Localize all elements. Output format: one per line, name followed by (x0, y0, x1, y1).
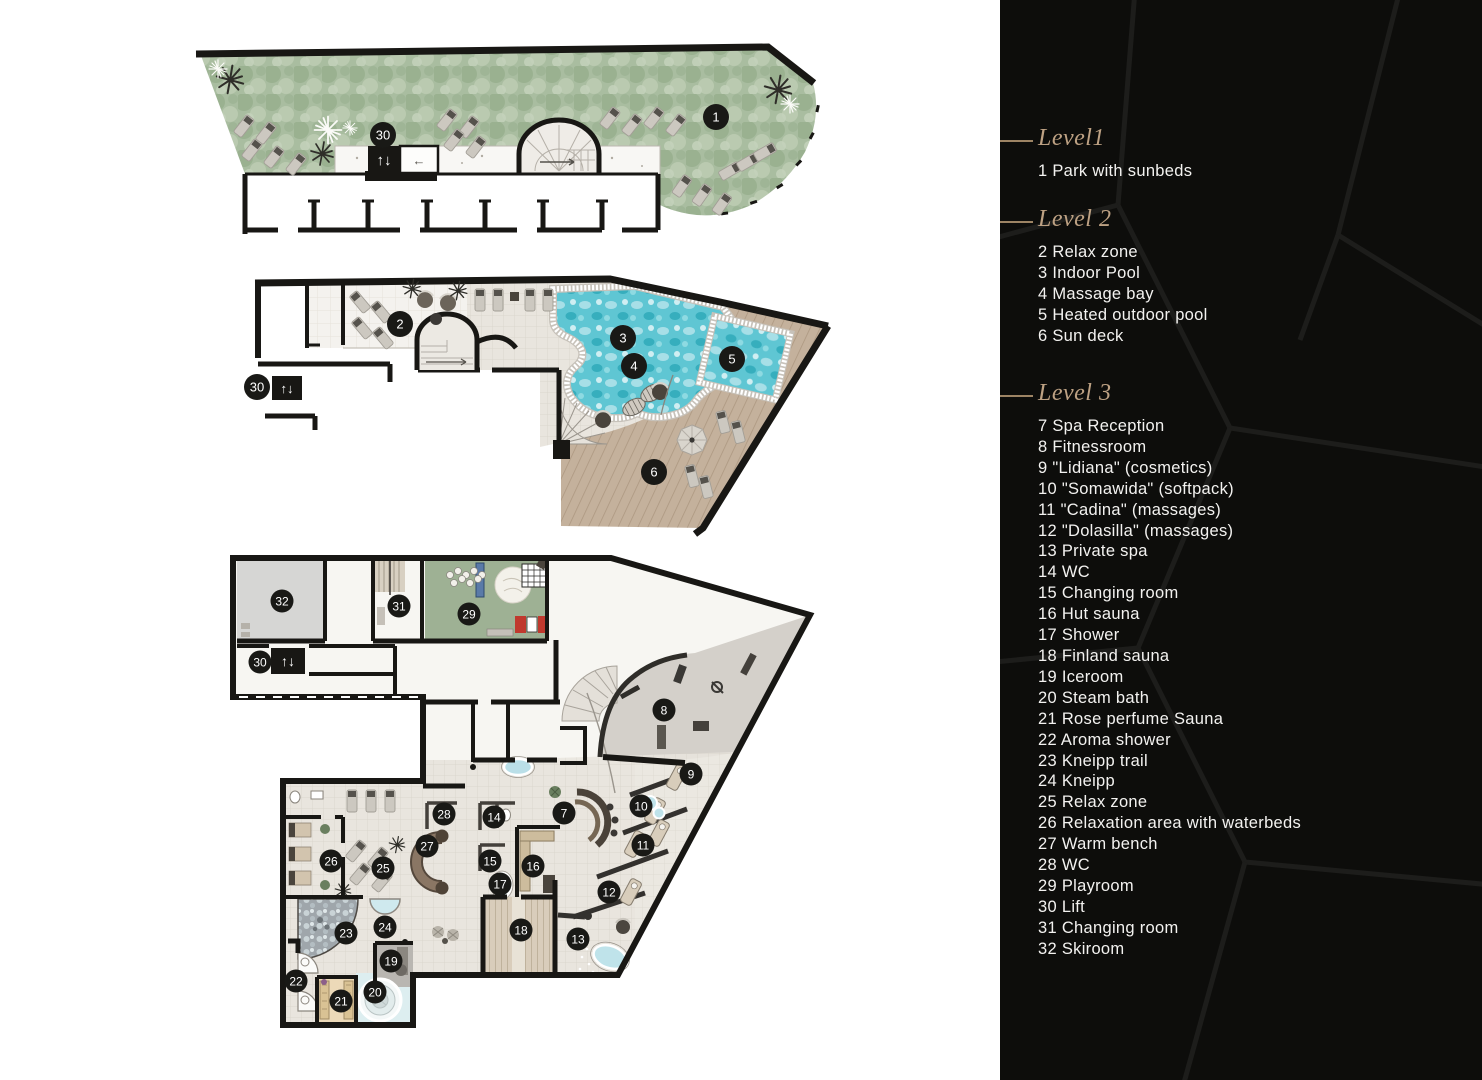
room-marker-number: 18 (514, 923, 528, 937)
legend-item: 20 Steam bath (1038, 688, 1301, 709)
room-marker-number: 30 (250, 380, 264, 395)
room-marker-number: 9 (688, 767, 695, 781)
room-marker-number: 5 (728, 352, 735, 367)
legend-item: 7 Spa Reception (1038, 416, 1301, 437)
legend-heading-level-1: Level1 (1038, 124, 1192, 152)
floor-plan-level-1: ↑↓ ← (196, 47, 820, 234)
outdoor-pool (699, 316, 790, 400)
legend-item: 15 Changing room (1038, 583, 1301, 604)
room-marker-number: 2 (396, 317, 403, 332)
lift-arrows-icon: ↑↓ (377, 152, 392, 169)
legend-item: 31 Changing room (1038, 918, 1301, 939)
legend-item: 16 Hut sauna (1038, 604, 1301, 625)
room-marker-number: 22 (289, 974, 303, 988)
legend-item: 9 "Lidiana" (cosmetics) (1038, 458, 1301, 479)
building-walls (245, 174, 658, 234)
room-marker-number: 31 (392, 599, 406, 613)
room-marker-number: 21 (334, 994, 348, 1008)
room-marker-number: 20 (368, 985, 382, 999)
floor-plans: ↑↓ ← (0, 0, 1000, 1080)
legend-item: 8 Fitnessroom (1038, 437, 1301, 458)
legend-item: 29 Playroom (1038, 876, 1301, 897)
legend-item: 32 Skiroom (1038, 939, 1301, 960)
room-marker-number: 1 (712, 110, 719, 125)
room-marker-number: 8 (661, 703, 668, 717)
legend-item: 28 WC (1038, 855, 1301, 876)
room-marker-number: 30 (253, 655, 267, 669)
legend-item: 14 WC (1038, 562, 1301, 583)
legend-item: 3 Indoor Pool (1038, 263, 1208, 284)
legend-item: 27 Warm bench (1038, 834, 1301, 855)
legend-item: 25 Relax zone (1038, 792, 1301, 813)
room-marker-number: 10 (634, 799, 648, 813)
room-marker-number: 25 (376, 861, 390, 875)
legend-item: 17 Shower (1038, 625, 1301, 646)
legend-item: 21 Rose perfume Sauna (1038, 709, 1301, 730)
room-marker-number: 27 (420, 839, 434, 853)
room-marker-number: 14 (487, 810, 501, 824)
legend-item: 4 Massage bay (1038, 284, 1208, 305)
legend-section-2: Level 22 Relax zone3 Indoor Pool4 Massag… (1038, 205, 1208, 347)
legend-item: 2 Relax zone (1038, 242, 1208, 263)
room-marker-number: 15 (483, 854, 497, 868)
room-marker-number: 23 (339, 926, 353, 940)
arrow-left-icon: ← (413, 153, 426, 168)
legend-item: 19 Iceroom (1038, 667, 1301, 688)
legend-item: 30 Lift (1038, 897, 1301, 918)
room-marker-number: 17 (493, 877, 507, 891)
legend-item: 6 Sun deck (1038, 326, 1208, 347)
legend-item: 26 Relaxation area with waterbeds (1038, 813, 1301, 834)
spa-floorplan-page: ↑↓ ← (0, 0, 1482, 1080)
legend-item-list: 1 Park with sunbeds (1038, 161, 1192, 182)
room-marker-number: 13 (571, 932, 585, 946)
lift-arrows-icon: ↑↓ (281, 653, 295, 669)
room-marker-number: 26 (324, 854, 338, 868)
room-marker-number: 19 (384, 954, 398, 968)
legend-panel: Level11 Park with sunbedsLevel 22 Relax … (1000, 0, 1482, 1080)
legend-heading-level-2: Level 2 (1038, 205, 1208, 233)
legend-section-1: Level11 Park with sunbeds (1038, 124, 1192, 182)
legend-item: 24 Kneipp (1038, 771, 1301, 792)
room-marker-number: 30 (376, 128, 390, 143)
legend-item: 10 "Somawida" (softpack) (1038, 479, 1301, 500)
legend-item-list: 2 Relax zone3 Indoor Pool4 Massage bay5 … (1038, 242, 1208, 347)
legend-item: 12 "Dolasilla" (massages) (1038, 521, 1301, 542)
lift-arrows-icon: ↑↓ (281, 381, 294, 396)
park-lawn (200, 47, 816, 215)
room-marker-number: 3 (619, 331, 626, 346)
room-marker-number: 28 (437, 807, 451, 821)
legend-item: 18 Finland sauna (1038, 646, 1301, 667)
room-marker-number: 4 (630, 359, 637, 374)
room-marker-number: 29 (462, 607, 476, 621)
legend-heading-level-3: Level 3 (1038, 379, 1301, 407)
legend-section-3: Level 37 Spa Reception8 Fitnessroom9 "Li… (1038, 379, 1301, 960)
floor-plan-level-3: ↑↓ 7891011121314151617181920212223242526… (233, 558, 810, 1030)
room-marker-number: 6 (650, 465, 657, 480)
legend-item: 5 Heated outdoor pool (1038, 305, 1208, 326)
stair-arch (519, 120, 599, 174)
room-marker-number: 16 (526, 859, 540, 873)
room-marker-number: 24 (378, 920, 392, 934)
room-marker-number: 7 (561, 806, 568, 820)
legend-item: 22 Aroma shower (1038, 730, 1301, 751)
legend-item: 23 Kneipp trail (1038, 751, 1301, 772)
stair-arch (417, 314, 477, 370)
room-marker-number: 32 (275, 594, 289, 608)
legend-item: 11 "Cadina" (massages) (1038, 500, 1301, 521)
legend-item-list: 7 Spa Reception8 Fitnessroom9 "Lidiana" … (1038, 416, 1301, 960)
room-marker-number: 12 (602, 885, 616, 899)
legend-item: 1 Park with sunbeds (1038, 161, 1192, 182)
room-marker-number: 11 (637, 838, 650, 852)
legend-item: 13 Private spa (1038, 541, 1301, 562)
umbrella-icon (677, 425, 707, 455)
floor-plan-level-2: ↑↓ 2345630 (244, 279, 828, 534)
